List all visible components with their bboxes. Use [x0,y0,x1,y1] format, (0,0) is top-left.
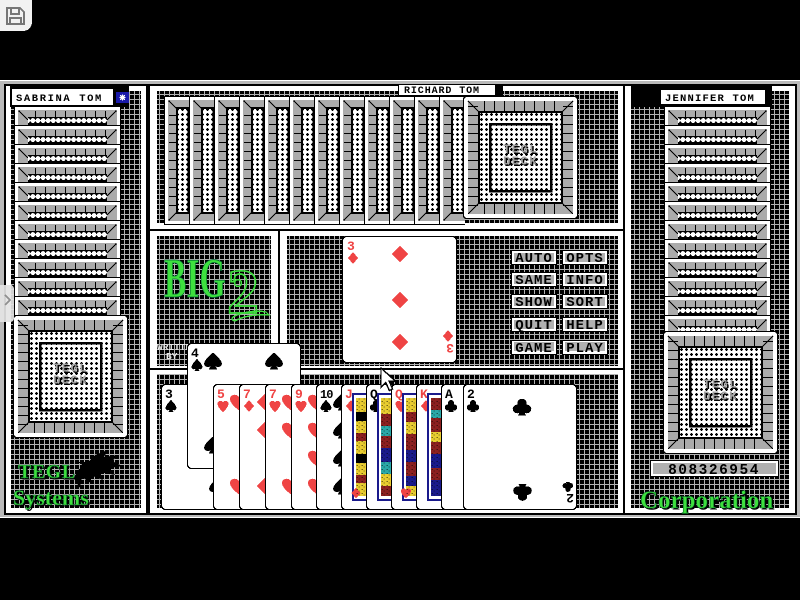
svg-text:SAME: SAME [515,273,553,289]
svg-text:AUTO: AUTO [515,251,553,267]
svg-text:BY: BY [166,351,178,362]
svg-text:OPTS: OPTS [566,251,604,267]
svg-text:JENNIFER TOM: JENNIFER TOM [665,93,755,105]
svg-text:SABRINA TOM: SABRINA TOM [16,93,103,105]
svg-text:RICHARD TOM: RICHARD TOM [404,86,480,97]
svg-text:PLAY: PLAY [566,341,604,357]
svg-text:GAME: GAME [515,341,553,357]
svg-text:HELP: HELP [566,318,604,334]
svg-text:3: 3 [347,239,355,254]
svg-text:2: 2 [227,256,259,327]
svg-text:INFO: INFO [566,273,604,289]
svg-text:7: 7 [269,387,277,402]
svg-text:3: 3 [446,340,454,355]
svg-text:Systems: Systems [13,485,89,510]
svg-text:808326954: 808326954 [668,463,760,479]
svg-text:2: 2 [566,490,574,505]
svg-text:K: K [420,387,428,402]
svg-text:TEGL: TEGL [18,461,76,483]
svg-text:4: 4 [191,346,199,361]
svg-text:7: 7 [243,387,251,402]
svg-text:2: 2 [467,387,475,402]
svg-text:SORT: SORT [566,295,604,311]
svg-text:BIG: BIG [164,247,226,309]
svg-text:QUIT: QUIT [515,318,553,334]
svg-text:SHOW: SHOW [515,295,553,311]
svg-text:J: J [345,387,353,402]
svg-text:9: 9 [295,387,303,402]
svg-text:3: 3 [165,387,173,402]
svg-text:A: A [445,387,453,402]
svg-text:Q: Q [395,387,403,402]
svg-text:Q: Q [370,387,378,402]
svg-text:10: 10 [320,388,333,402]
svg-text:5: 5 [217,387,225,402]
svg-text:Corporation: Corporation [640,487,773,514]
